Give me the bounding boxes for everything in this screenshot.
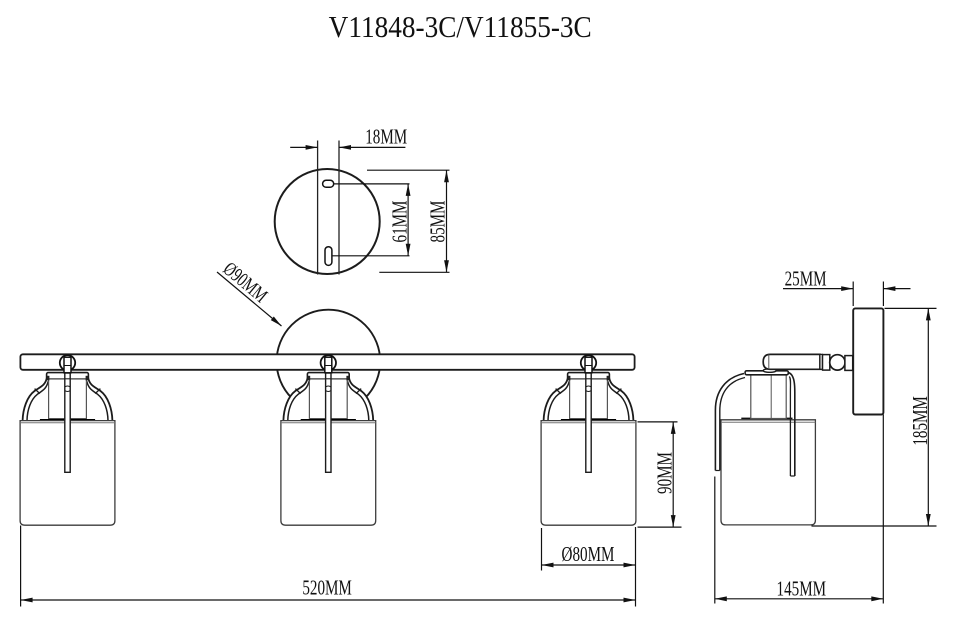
svg-text:61MM: 61MM [388,201,411,243]
svg-text:Ø80MM: Ø80MM [562,543,615,566]
svg-text:90MM: 90MM [653,452,676,494]
svg-text:185MM: 185MM [908,396,931,446]
svg-text:145MM: 145MM [777,577,827,600]
svg-text:25MM: 25MM [785,267,827,290]
svg-text:18MM: 18MM [365,125,407,148]
svg-text:V11848-3C/V11855-3C: V11848-3C/V11855-3C [329,10,592,44]
svg-text:85MM: 85MM [426,201,449,243]
svg-text:Ø90MM: Ø90MM [219,257,272,307]
svg-text:520MM: 520MM [302,576,352,599]
